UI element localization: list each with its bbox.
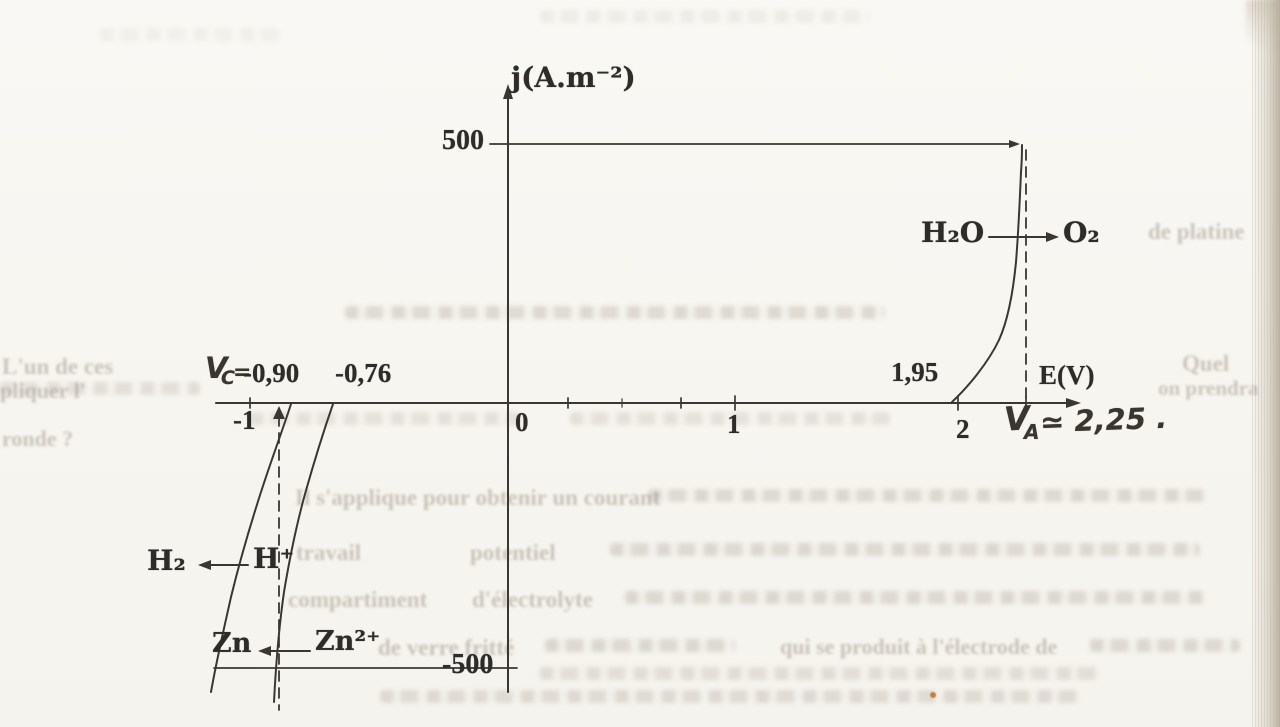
x-tick-1: 1: [727, 411, 741, 438]
x-tick-minus1: -1: [233, 407, 256, 434]
anodic-curve-o2: [952, 145, 1022, 402]
cathode-potential-value: -0,90: [243, 360, 299, 387]
anode-potential-value: ≃ 2,25 .: [1040, 404, 1168, 437]
h2o-to-o2-arrowhead: [1046, 232, 1059, 242]
anode-onset-value: 1,95: [891, 359, 938, 386]
zinc-equilibrium-value: -0,76: [335, 360, 391, 387]
hplus-to-h2-arrowhead: [198, 560, 211, 570]
scanned-textbook-page: L'un de ces pliquer l' ronde ? Quel on p…: [0, 0, 1280, 727]
zinc-ion-label: Zn²⁺: [315, 628, 380, 655]
y-tick-minus500: -500: [442, 651, 493, 679]
ink-speck: [930, 692, 936, 698]
j500-line-arrowhead: [1009, 140, 1020, 148]
y-axis-label: j(A.m⁻²): [511, 64, 636, 92]
oxygen-species-label: O₂: [1063, 219, 1100, 247]
hydrogen-gas-label: H₂: [147, 547, 186, 575]
y-tick-500: 500: [442, 127, 484, 155]
zinc-metal-label: Zn: [212, 630, 251, 657]
page-edge-shadow: [1252, 0, 1280, 727]
anode-potential-subscript: A: [1024, 422, 1039, 442]
water-species-label: H₂O: [921, 219, 984, 247]
x-tick-2: 2: [956, 416, 970, 443]
cathode-guide-arrowhead: [273, 406, 285, 419]
x-axis-label: E(V): [1039, 362, 1095, 389]
zn2plus-to-zn-arrowhead: [258, 646, 271, 656]
x-tick-0: 0: [515, 409, 529, 436]
proton-species-label: H⁺: [253, 545, 294, 573]
